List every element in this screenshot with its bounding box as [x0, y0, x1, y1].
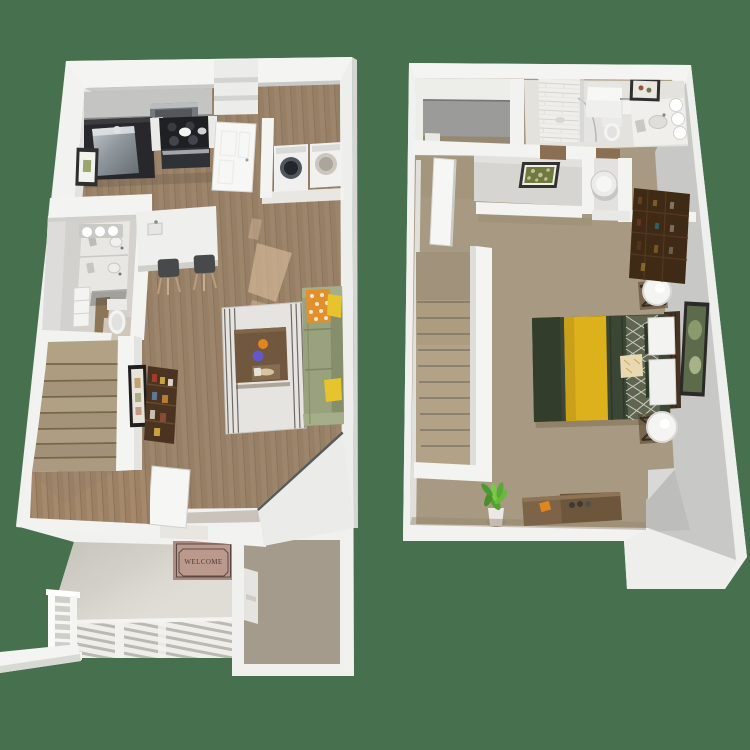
- svg-text:WELCOME: WELCOME: [184, 558, 222, 566]
